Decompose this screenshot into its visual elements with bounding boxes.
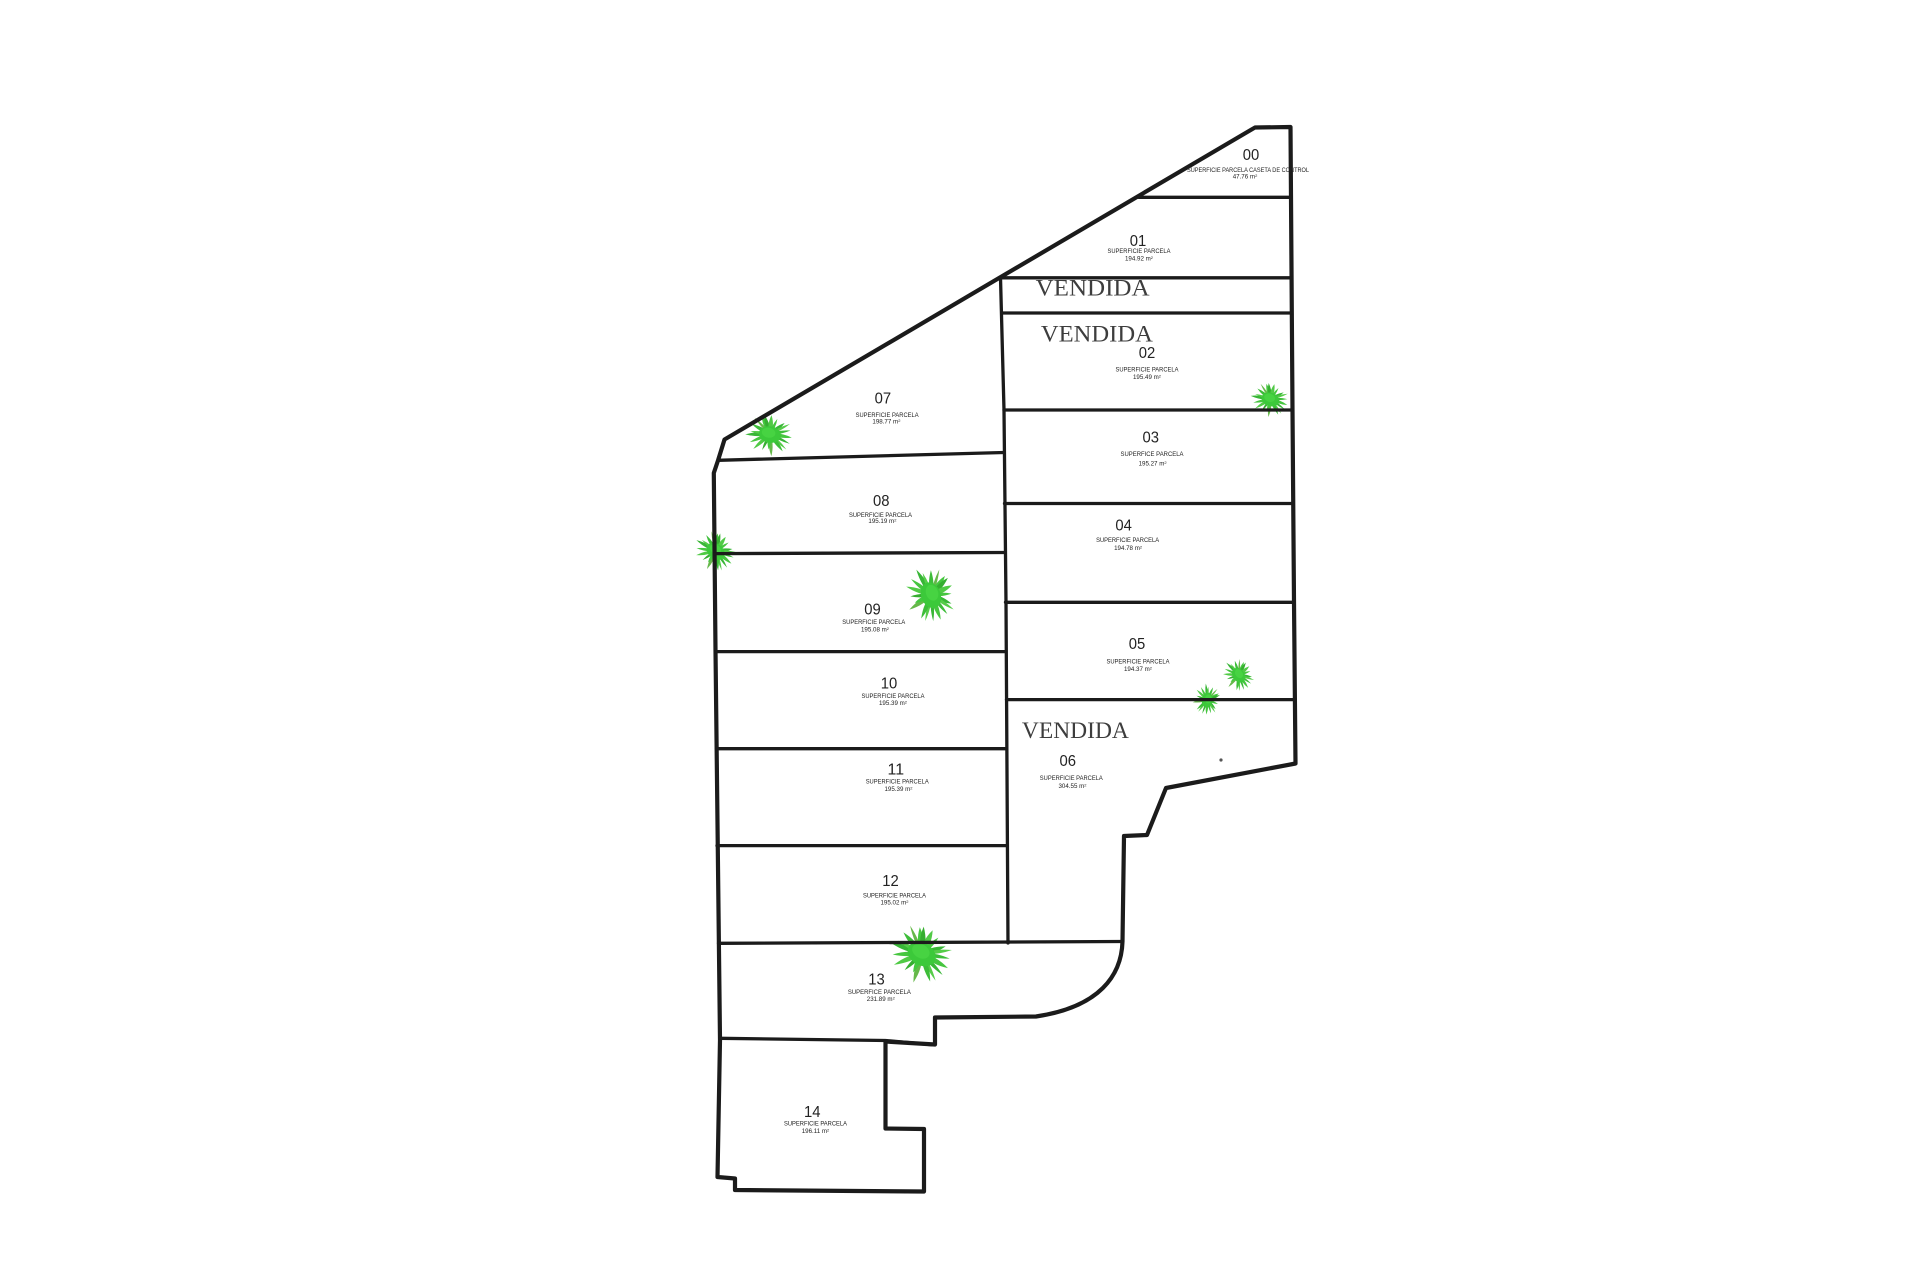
svg-text:SUPERFICIE PARCELA: SUPERFICIE PARCELA xyxy=(1040,775,1104,782)
svg-text:08: 08 xyxy=(873,493,890,510)
svg-text:14: 14 xyxy=(804,1104,821,1121)
svg-text:195.19 m2: 195.19 m2 xyxy=(868,517,897,525)
svg-text:VENDIDA: VENDIDA xyxy=(1041,321,1153,347)
svg-text:304.55 m2: 304.55 m2 xyxy=(1058,782,1087,790)
svg-text:47.76 m2: 47.76 m2 xyxy=(1233,173,1258,181)
svg-text:SUPERFICIE PARCELA: SUPERFICIE PARCELA xyxy=(862,693,926,700)
svg-text:194.37 m2: 194.37 m2 xyxy=(1124,665,1153,673)
svg-text:02: 02 xyxy=(1139,345,1156,362)
svg-text:SUPERFICIE PARCELA: SUPERFICIE PARCELA xyxy=(842,619,906,626)
svg-text:SUPERFICIE PARCELA: SUPERFICIE PARCELA xyxy=(866,779,930,786)
svg-text:SUPERFICIE PARCELA: SUPERFICIE PARCELA xyxy=(784,1121,848,1128)
svg-text:195.02 m2: 195.02 m2 xyxy=(880,899,909,907)
svg-text:195.27 m2: 195.27 m2 xyxy=(1139,459,1168,467)
svg-text:SUPERFICIE PARCELA: SUPERFICIE PARCELA xyxy=(1096,537,1160,544)
svg-text:11: 11 xyxy=(888,762,905,779)
svg-text:10: 10 xyxy=(881,675,898,692)
svg-text:195.49 m2: 195.49 m2 xyxy=(1133,373,1162,381)
svg-text:195.39 m2: 195.39 m2 xyxy=(879,699,908,707)
svg-text:12: 12 xyxy=(882,873,899,890)
svg-text:SUPERFICIE PARCELA: SUPERFICIE PARCELA xyxy=(1107,659,1171,666)
svg-text:SUPERFICIE PARCELA: SUPERFICIE PARCELA xyxy=(1116,366,1180,373)
svg-text:SUPERFICIE PARCELA: SUPERFICIE PARCELA xyxy=(863,892,927,899)
svg-text:05: 05 xyxy=(1129,636,1146,653)
svg-text:07: 07 xyxy=(875,390,892,407)
svg-text:196.11 m2: 196.11 m2 xyxy=(802,1127,830,1135)
svg-text:04: 04 xyxy=(1115,517,1132,534)
svg-text:198.77 m2: 198.77 m2 xyxy=(872,418,901,426)
svg-text:SUPERFICE PARCELA: SUPERFICE PARCELA xyxy=(1121,451,1185,458)
svg-text:09: 09 xyxy=(864,602,881,619)
svg-text:194.92 m2: 194.92 m2 xyxy=(1125,255,1154,263)
svg-text:00: 00 xyxy=(1243,147,1260,164)
svg-text:VENDIDA: VENDIDA xyxy=(1022,718,1129,744)
svg-text:SUPERFICE PARCELA: SUPERFICE PARCELA xyxy=(848,989,912,996)
svg-text:VENDIDA: VENDIDA xyxy=(1036,275,1150,301)
svg-text:231.89 m2: 231.89 m2 xyxy=(867,995,896,1003)
svg-text:13: 13 xyxy=(868,972,885,989)
svg-text:194.78 m2: 194.78 m2 xyxy=(1114,544,1143,552)
svg-text:195.08 m2: 195.08 m2 xyxy=(861,626,890,634)
svg-text:SUPERFICIE PARCELA: SUPERFICIE PARCELA xyxy=(1108,248,1172,255)
svg-text:06: 06 xyxy=(1060,753,1077,770)
svg-text:03: 03 xyxy=(1143,430,1160,447)
svg-text:195.39 m2: 195.39 m2 xyxy=(884,785,913,793)
